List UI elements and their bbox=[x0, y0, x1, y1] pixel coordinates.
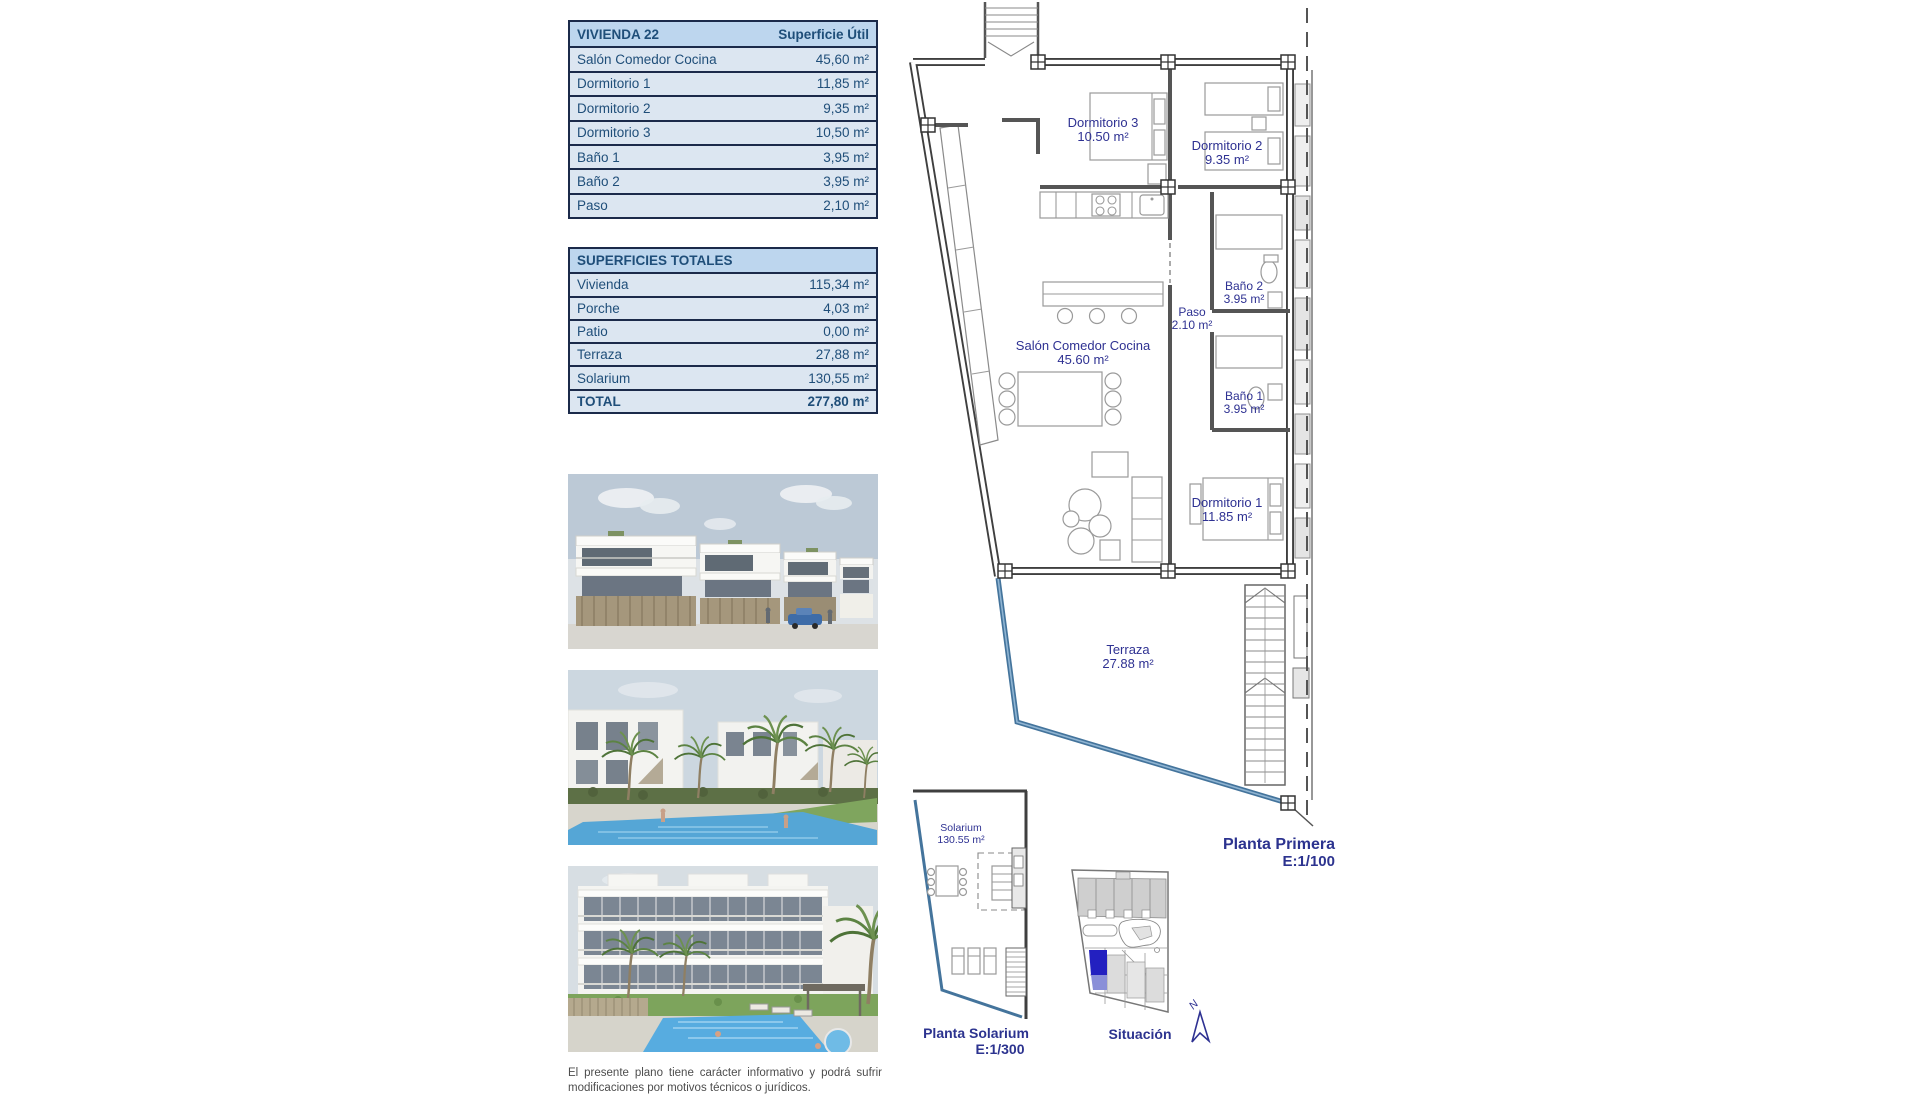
table-row: Vivienda 115,34 m² bbox=[570, 272, 876, 295]
situacion-highlighted-unit bbox=[1089, 950, 1107, 975]
room-label-dormitorio1-area: 11.85 m² bbox=[1202, 509, 1253, 524]
room-label-terraza-name: Terraza bbox=[1106, 642, 1150, 657]
room-label-solarium-name: Solarium bbox=[940, 822, 982, 834]
room-label-paso-name: Paso bbox=[1178, 305, 1206, 319]
render-exterior-street bbox=[568, 474, 878, 649]
row-value: 9,35 m² bbox=[823, 101, 869, 116]
row-label: Dormitorio 3 bbox=[577, 125, 651, 140]
room-label-salon-name: Salón Comedor Cocina bbox=[1016, 338, 1151, 353]
row-label: Baño 1 bbox=[577, 150, 620, 165]
caption-planta-primera-title: Planta Primera bbox=[1180, 836, 1335, 854]
total-value: 277,80 m² bbox=[807, 394, 869, 409]
breakfast-bar bbox=[1043, 282, 1163, 324]
room-label-terraza-area: 27.88 m² bbox=[1102, 656, 1154, 671]
totales-table: SUPERFICIES TOTALES Vivienda 115,34 m² P… bbox=[568, 247, 878, 414]
terrace-staircase bbox=[1245, 585, 1285, 785]
row-value: 0,00 m² bbox=[823, 324, 869, 339]
entry-closet bbox=[928, 125, 998, 445]
row-label: Baño 2 bbox=[577, 174, 620, 189]
row-value: 10,50 m² bbox=[816, 125, 869, 140]
table-title: SUPERFICIES TOTALES bbox=[577, 253, 733, 268]
caption-situacion: Situación bbox=[1108, 1026, 1171, 1042]
row-value: 2,10 m² bbox=[823, 198, 869, 213]
caption-planta-primera: Planta Primera E:1/100 bbox=[1180, 836, 1335, 870]
table-row: Terraza 27,88 m² bbox=[570, 342, 876, 365]
row-label: Paso bbox=[577, 198, 608, 213]
room-label-salon-area: 45.60 m² bbox=[1057, 352, 1109, 367]
render-building-illustration bbox=[568, 866, 878, 1052]
sofa-living bbox=[1063, 452, 1162, 562]
table-row: Dormitorio 2 9,35 m² bbox=[570, 95, 876, 119]
row-label: Solarium bbox=[577, 371, 630, 386]
room-label-dormitorio3-area: 10.50 m² bbox=[1077, 129, 1129, 144]
room-label-bano2-area: 3.95 m² bbox=[1224, 292, 1265, 306]
boundary-tick bbox=[1293, 808, 1313, 826]
render-pool-illustration bbox=[568, 670, 878, 845]
row-value: 3,95 m² bbox=[823, 150, 869, 165]
table-total-row: TOTAL 277,80 m² bbox=[570, 389, 876, 412]
caption-planta-solarium: Planta Solarium bbox=[923, 1025, 1029, 1041]
top-staircase bbox=[985, 2, 1038, 58]
row-value: 3,95 m² bbox=[823, 174, 869, 189]
table-row: Salón Comedor Cocina 45,60 m² bbox=[570, 46, 876, 70]
room-label-dormitorio2-name: Dormitorio 2 bbox=[1192, 138, 1263, 153]
row-value: 130,55 m² bbox=[808, 371, 869, 386]
table-title: VIVIENDA 22 bbox=[577, 27, 659, 42]
table-col-header: Superficie Útil bbox=[778, 27, 869, 42]
table-row: Dormitorio 1 11,85 m² bbox=[570, 71, 876, 95]
row-value: 4,03 m² bbox=[823, 301, 869, 316]
kitchen-counter bbox=[1040, 192, 1168, 218]
room-label-dormitorio2-area: 9.35 m² bbox=[1205, 152, 1250, 167]
room-label-bano1-name: Baño 1 bbox=[1225, 389, 1263, 403]
side-gallery bbox=[1293, 70, 1312, 800]
vivienda-table: VIVIENDA 22 Superficie Útil Salón Comedo… bbox=[568, 20, 878, 219]
table-row: Porche 4,03 m² bbox=[570, 296, 876, 319]
row-value: 27,88 m² bbox=[816, 347, 869, 362]
table-row: Solarium 130,55 m² bbox=[570, 365, 876, 388]
north-arrow-icon: N bbox=[1187, 998, 1209, 1042]
table-row: Patio 0,00 m² bbox=[570, 319, 876, 342]
render-exterior-pool bbox=[568, 670, 878, 845]
terrace-boundary bbox=[998, 578, 1287, 803]
row-label: Salón Comedor Cocina bbox=[577, 52, 717, 67]
room-label-bano2-name: Baño 2 bbox=[1225, 279, 1263, 293]
room-label-dormitorio1-name: Dormitorio 1 bbox=[1192, 495, 1263, 510]
caption-planta-primera-scale: E:1/100 bbox=[1180, 854, 1335, 871]
row-label: Dormitorio 1 bbox=[577, 76, 651, 91]
row-value: 115,34 m² bbox=[809, 277, 869, 292]
table-row: Baño 1 3,95 m² bbox=[570, 144, 876, 168]
room-label-dormitorio3-name: Dormitorio 3 bbox=[1068, 115, 1139, 130]
room-label-bano1-area: 3.95 m² bbox=[1224, 402, 1265, 416]
room-label-paso-area: 2.10 m² bbox=[1172, 318, 1213, 332]
room-label-solarium-area: 130.55 m² bbox=[937, 834, 985, 846]
caption-planta-solarium-scale: E:1/300 bbox=[975, 1041, 1024, 1057]
row-label: Vivienda bbox=[577, 277, 629, 292]
render-street-illustration bbox=[568, 474, 878, 649]
table-header-row: VIVIENDA 22 Superficie Útil bbox=[570, 22, 876, 46]
table-row: Paso 2,10 m² bbox=[570, 193, 876, 217]
row-value: 45,60 m² bbox=[816, 52, 869, 67]
total-label: TOTAL bbox=[577, 394, 621, 409]
solarium-plan: Solarium 130.55 m² bbox=[913, 791, 1027, 1019]
floor-plan: Dormitorio 3 10.50 m² Dormitorio 2 9.35 … bbox=[900, 0, 1360, 1080]
situacion-plan bbox=[1072, 870, 1168, 1012]
disclaimer-text: El presente plano tiene carácter informa… bbox=[568, 1066, 882, 1097]
row-label: Porche bbox=[577, 301, 620, 316]
table-row: Dormitorio 3 10,50 m² bbox=[570, 120, 876, 144]
row-value: 11,85 m² bbox=[817, 76, 869, 91]
table-row: Baño 2 3,95 m² bbox=[570, 168, 876, 192]
row-label: Patio bbox=[577, 324, 608, 339]
row-label: Dormitorio 2 bbox=[577, 101, 651, 116]
render-exterior-building bbox=[568, 866, 878, 1052]
dining-table bbox=[999, 372, 1121, 426]
row-label: Terraza bbox=[577, 347, 622, 362]
table-header-row: SUPERFICIES TOTALES bbox=[570, 249, 876, 272]
north-label: N bbox=[1187, 998, 1201, 1012]
